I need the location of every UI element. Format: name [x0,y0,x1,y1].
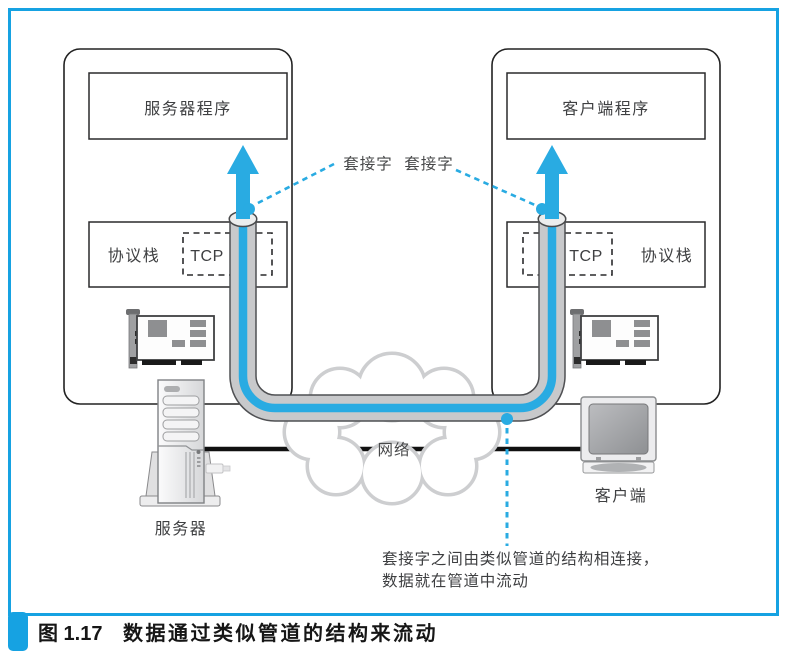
server-socket-dot [243,203,255,215]
server-tcp-label: TCP [190,248,224,265]
network-cloud-icon [286,355,498,502]
server-protocol-stack-label: 协议栈 [108,247,161,265]
client-monitor-icon [581,397,656,473]
client-nic-icon [570,309,658,368]
cable-plug-icon [206,464,230,473]
socket-label-right: 套接字 [404,155,454,173]
client-tcp-label: TCP [569,248,603,265]
pipe-note-line1: 套接字之间由类似管道的结构相连接， [382,550,659,568]
pipe-note-line2: 数据就在管道中流动 [382,572,529,590]
server-nic-icon [126,309,214,368]
caption-tab [8,612,28,651]
client-socket-dot [536,203,548,215]
diagram-canvas: 图 1.17 数据通过类似管道的结构来流动 服务器程序 客户端程序 协议栈 协议… [0,0,798,654]
network-label: 网络 [377,441,410,459]
server-device-label: 服务器 [155,520,208,538]
client-protocol-stack-label: 协议栈 [641,247,694,265]
client-program-label: 客户端程序 [562,100,650,118]
server-program-label: 服务器程序 [144,100,232,118]
socket-label-left: 套接字 [343,155,393,173]
caption-label: 图 1.17 [38,622,102,645]
pipe-note-dot [501,413,513,425]
figure-1-17: 图 1.17 数据通过类似管道的结构来流动 服务器程序 客户端程序 协议栈 协议… [0,0,798,654]
client-device-label: 客户端 [595,487,648,505]
caption-title: 数据通过类似管道的结构来流动 [123,621,438,645]
